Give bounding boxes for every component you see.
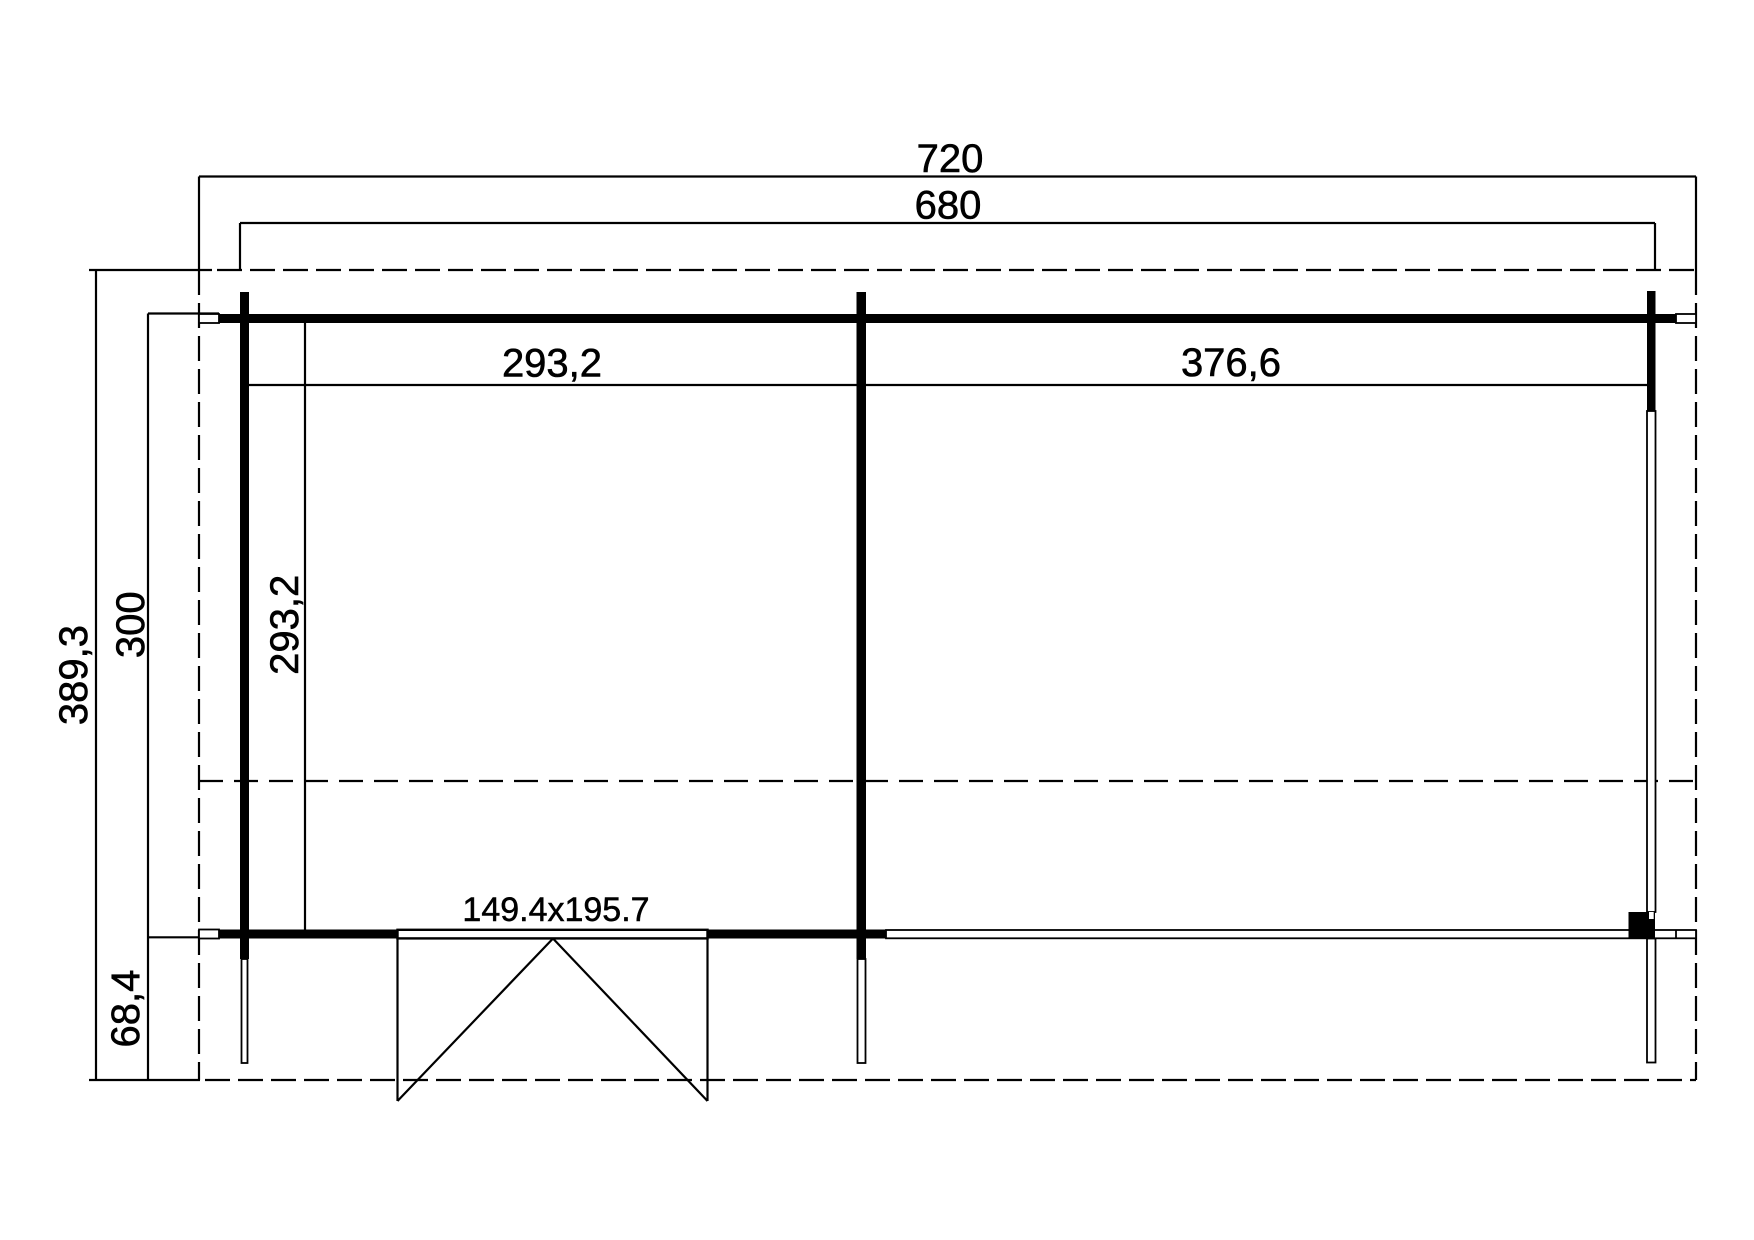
svg-text:293,2: 293,2 <box>263 575 307 675</box>
svg-text:68,4: 68,4 <box>104 970 148 1048</box>
svg-text:720: 720 <box>917 137 984 181</box>
svg-text:149.4x195.7: 149.4x195.7 <box>462 891 649 929</box>
svg-text:293,2: 293,2 <box>502 342 602 386</box>
svg-text:376,6: 376,6 <box>1181 341 1281 385</box>
svg-text:300: 300 <box>109 591 153 658</box>
svg-text:680: 680 <box>915 184 982 228</box>
svg-text:389,3: 389,3 <box>52 625 96 725</box>
